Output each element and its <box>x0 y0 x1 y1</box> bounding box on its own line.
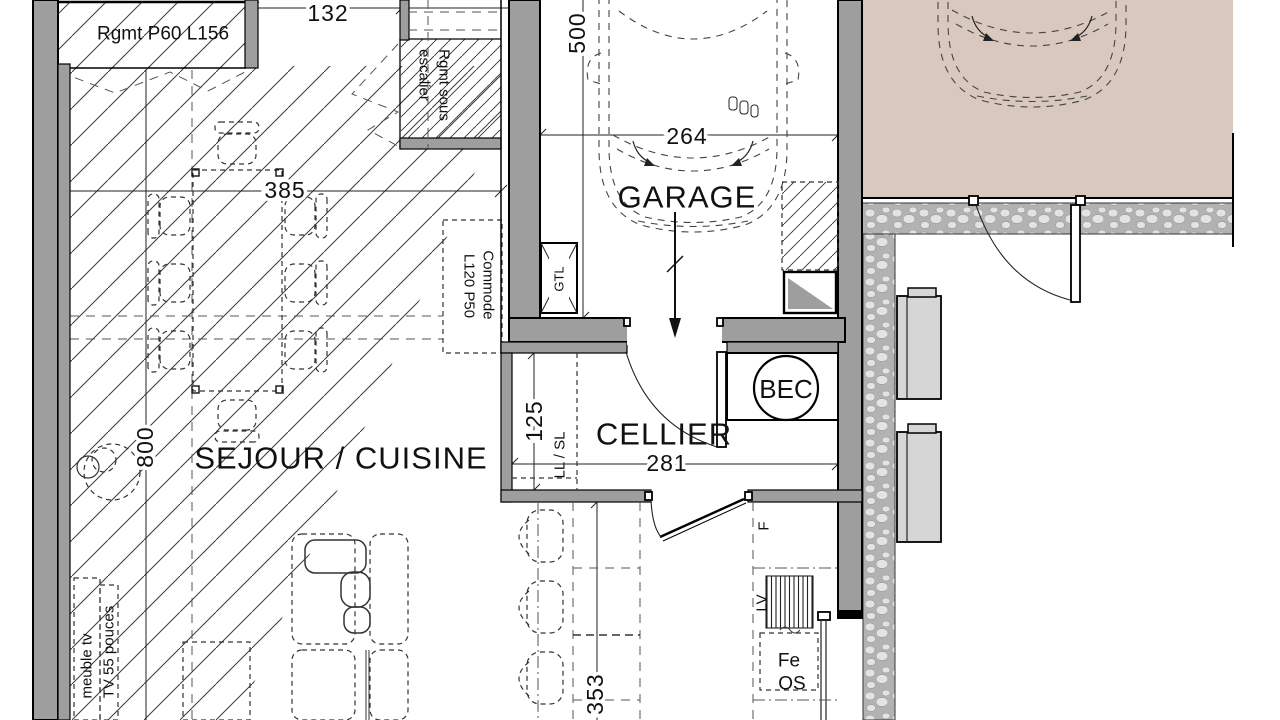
exterior-wall-west <box>33 0 58 720</box>
kitchen-window-east <box>818 612 830 720</box>
label-fridge: F <box>756 521 773 530</box>
gtl-box: GTL <box>541 243 577 313</box>
bar-stool <box>519 510 563 562</box>
cellier-wall-south-east <box>748 490 862 502</box>
technical-zone <box>782 182 838 313</box>
label-lv: LV <box>754 594 771 611</box>
floorplan-canvas: GTL BEC <box>0 0 1280 720</box>
label-meuble-tv: meuble tv <box>79 633 96 699</box>
outdoor-unit-2-cap <box>908 424 936 433</box>
driveway-area <box>862 0 1233 198</box>
dim-800: 800 <box>132 426 158 467</box>
label-commode-size: L120 P50 <box>461 254 478 318</box>
cellier-wall-west <box>501 353 512 502</box>
floorplan-svg: GTL BEC <box>0 0 1280 720</box>
dim-385: 385 <box>264 177 305 203</box>
outdoor-units <box>897 288 941 542</box>
room-label-cellier: CELLIER <box>596 417 732 452</box>
dim-125: 125 <box>521 400 547 441</box>
gravel-strip-horizontal <box>862 203 1233 234</box>
dim-500: 500 <box>564 12 590 53</box>
sofa-armrest <box>305 540 366 573</box>
label-rgmt-p60: Rgmt P60 L156 <box>97 24 229 45</box>
label-escalier: escalier <box>416 49 433 101</box>
outdoor-unit-2 <box>897 432 941 542</box>
room-label-sejour: SEJOUR / CUISINE <box>194 441 487 476</box>
bar-stool <box>519 581 563 633</box>
sofa-cushion <box>344 607 370 633</box>
bec-niche: BEC <box>727 353 838 420</box>
label-fe: Fe <box>778 651 800 672</box>
label-rgmt-sous: Rgmt sous <box>436 49 453 121</box>
gtl-label: GTL <box>552 266 567 291</box>
bar-stool <box>519 652 563 704</box>
label-commode: Commode <box>480 250 497 319</box>
driveway-surface <box>862 0 1233 198</box>
dim-132: 132 <box>307 0 348 26</box>
gravel-strip-vertical <box>863 234 895 720</box>
garage-wall-east <box>838 0 862 618</box>
cellier-wall-south-west <box>501 490 651 502</box>
door-swing-arc <box>651 499 661 537</box>
door-cellier-south <box>645 492 752 541</box>
bec-label: BEC <box>759 374 812 404</box>
sofa <box>292 534 408 720</box>
outdoor-unit-1-cap <box>908 288 936 297</box>
label-os: OS <box>778 674 805 695</box>
closet-wall <box>245 0 258 68</box>
room-label-garage: GARAGE <box>618 180 757 215</box>
dim-353: 353 <box>582 673 608 714</box>
gate-post-right <box>1076 196 1085 205</box>
label-tv-55: TV 55 pouces <box>101 606 118 699</box>
dim-264: 264 <box>666 123 707 149</box>
label-ll-sl: LL / SL <box>552 432 569 479</box>
dim-281: 281 <box>646 450 687 476</box>
garage-wall-west <box>509 0 540 352</box>
sink-unit <box>766 576 813 628</box>
gate-leaf <box>1071 205 1080 302</box>
gate-post-left <box>969 196 978 205</box>
door-leaf <box>660 499 744 537</box>
interior-lining-west <box>58 64 70 720</box>
outdoor-unit-1 <box>897 296 941 399</box>
